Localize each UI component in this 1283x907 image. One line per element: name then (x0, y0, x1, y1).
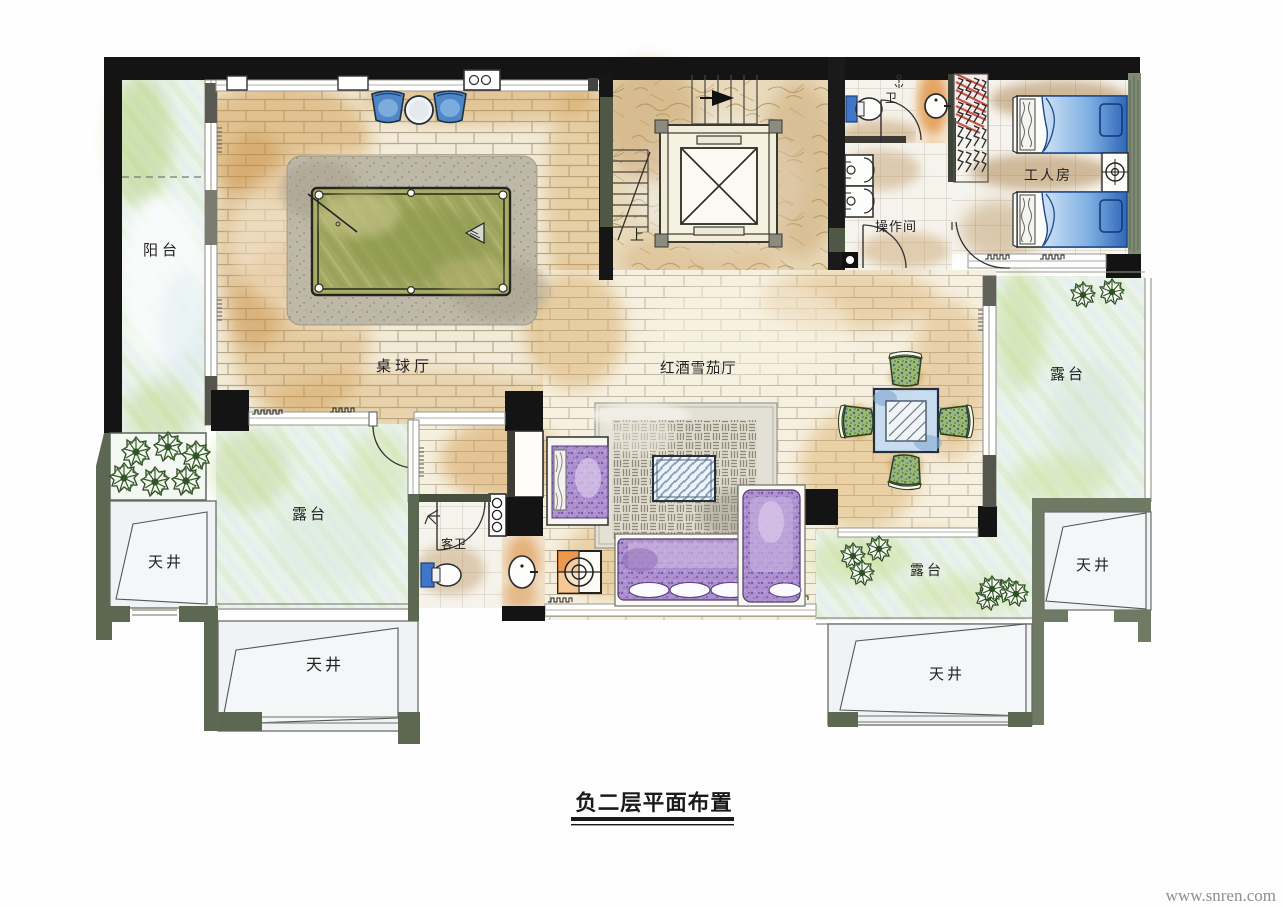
svg-text:卫: 卫 (885, 91, 897, 105)
svg-text:天井: 天井 (1076, 557, 1112, 574)
svg-text:客卫: 客卫 (441, 536, 467, 551)
svg-text:操作间: 操作间 (875, 219, 917, 234)
svg-text:露台: 露台 (1050, 366, 1086, 383)
svg-text:上: 上 (630, 227, 644, 243)
svg-text:露台: 露台 (292, 506, 328, 523)
svg-text:露台: 露台 (910, 562, 944, 578)
svg-text:www.snren.com: www.snren.com (1166, 886, 1276, 905)
svg-text:工人房: 工人房 (1024, 167, 1072, 183)
svg-text:桌球厅: 桌球厅 (376, 358, 433, 375)
svg-text:天井: 天井 (306, 656, 344, 674)
svg-text:红酒雪茄厅: 红酒雪茄厅 (660, 360, 737, 377)
svg-text:天井: 天井 (929, 666, 965, 683)
svg-text:天井: 天井 (148, 554, 184, 571)
svg-text:阳台: 阳台 (143, 242, 181, 259)
svg-text:负二层平面布置: 负二层平面布置 (575, 790, 733, 815)
